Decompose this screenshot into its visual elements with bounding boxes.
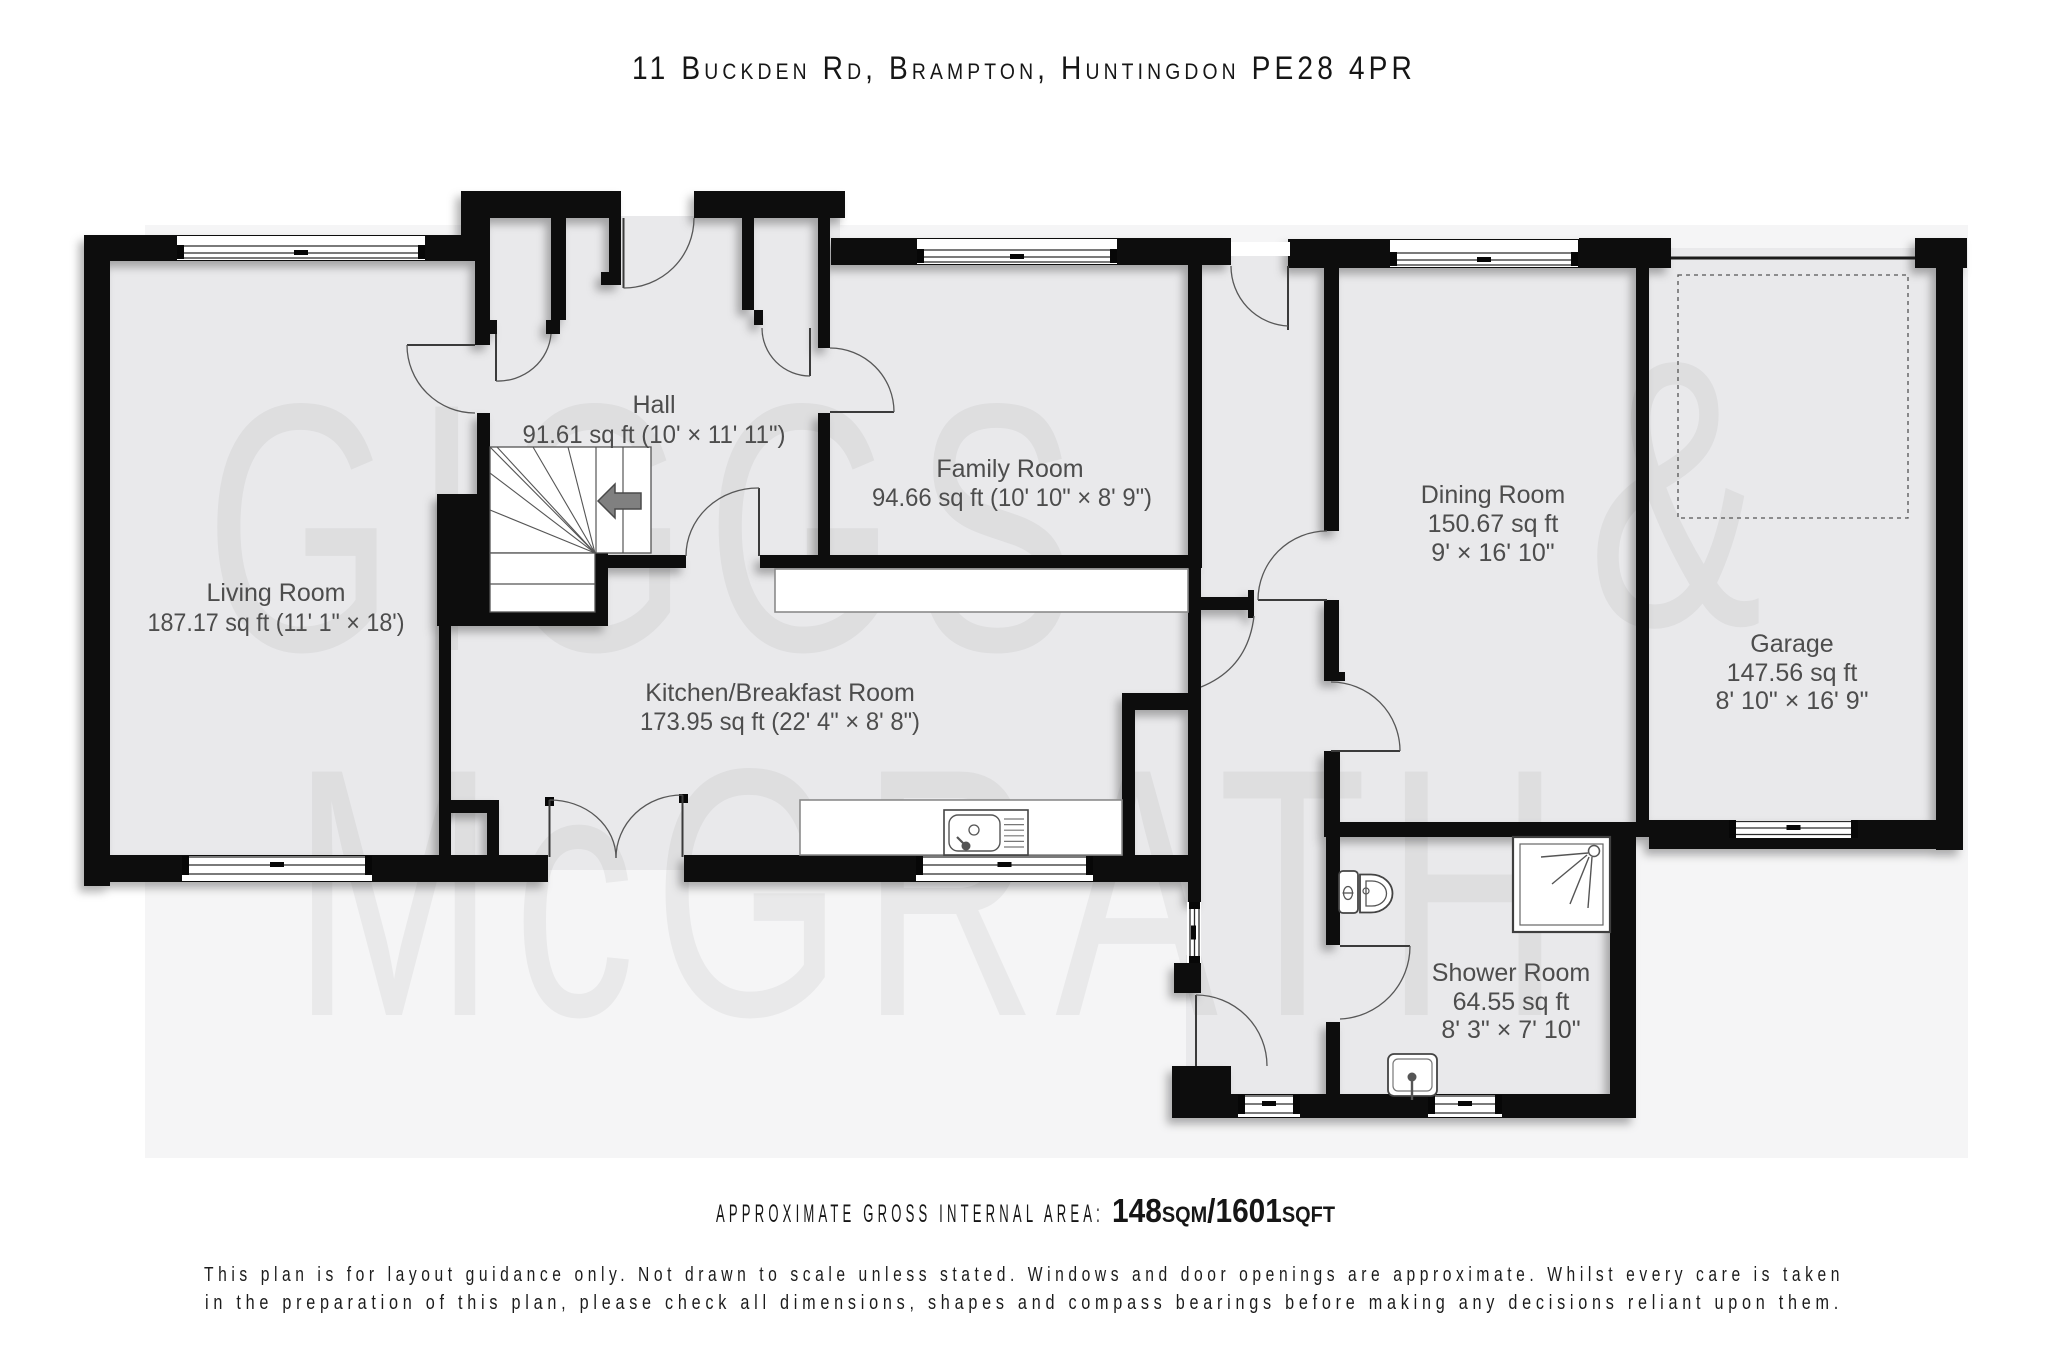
svg-text:91.61 sq ft (10' × 11' 11"): 91.61 sq ft (10' × 11' 11")	[523, 421, 786, 449]
svg-text:Hall: Hall	[632, 391, 675, 419]
svg-text:150.67 sq ft: 150.67 sq ft	[1428, 510, 1559, 538]
svg-text:Living Room: Living Room	[207, 579, 346, 607]
svg-text:64.55 sq ft: 64.55 sq ft	[1453, 988, 1570, 1016]
svg-text:Dining Room: Dining Room	[1421, 481, 1566, 509]
svg-text:&: &	[1588, 283, 1763, 707]
svg-text:8' 10" × 16' 9": 8' 10" × 16' 9"	[1715, 687, 1868, 715]
svg-text:Garage: Garage	[1750, 630, 1833, 658]
svg-text:147.56 sq ft: 147.56 sq ft	[1727, 659, 1858, 687]
svg-text:Family Room: Family Room	[936, 455, 1083, 483]
svg-text:in the preparation of this pla: in the preparation of this plan, please …	[205, 1291, 1843, 1314]
svg-text:173.95 sq ft (22' 4" × 8' 8"): 173.95 sq ft (22' 4" × 8' 8")	[640, 708, 920, 736]
svg-text:Kitchen/Breakfast Room: Kitchen/Breakfast Room	[645, 679, 915, 707]
svg-text:This plan is for layout guidan: This plan is for layout guidance only. N…	[204, 1263, 1844, 1286]
svg-text:187.17 sq ft (11' 1" × 18'): 187.17 sq ft (11' 1" × 18')	[148, 609, 405, 637]
svg-text:Shower Room: Shower Room	[1432, 959, 1590, 987]
svg-text:94.66 sq ft (10' 10" × 8' 9"): 94.66 sq ft (10' 10" × 8' 9")	[872, 484, 1152, 512]
svg-text:11 Buckden Rd, Brampton, Hunti: 11 Buckden Rd, Brampton, Huntingdon PE28…	[632, 50, 1416, 86]
svg-text:8' 3" × 7' 10": 8' 3" × 7' 10"	[1441, 1016, 1580, 1044]
svg-text:APPROXIMATE GROSS INTERNAL ARE: APPROXIMATE GROSS INTERNAL AREA:	[716, 1200, 1104, 1228]
svg-text:9' × 16' 10": 9' × 16' 10"	[1431, 539, 1554, 567]
